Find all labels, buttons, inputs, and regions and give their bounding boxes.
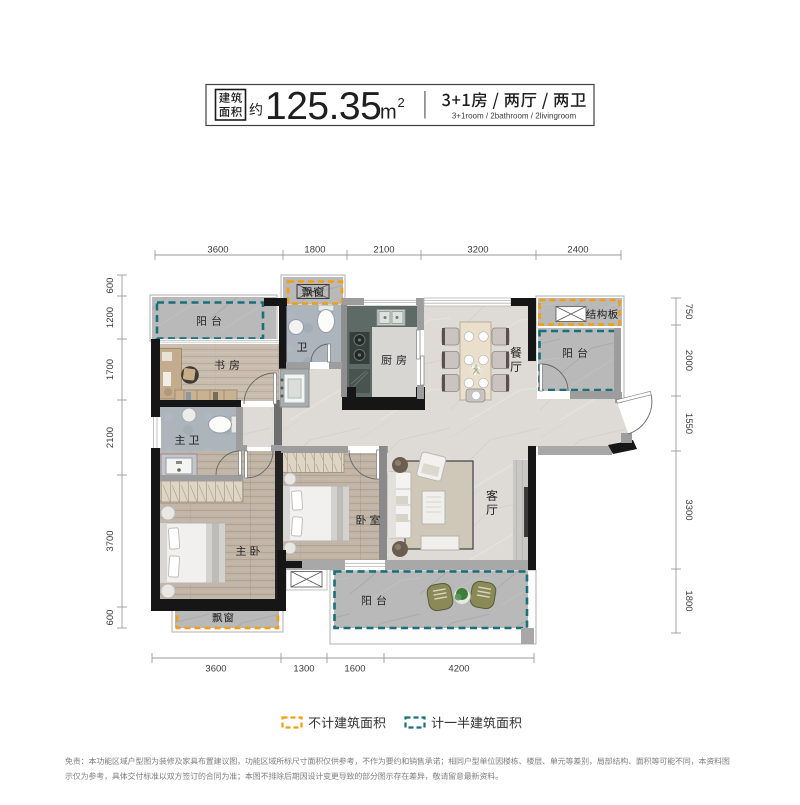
svg-text:4200: 4200: [448, 664, 469, 675]
svg-text:1700: 1700: [105, 359, 116, 380]
svg-text:1550: 1550: [683, 413, 694, 434]
svg-text:2100: 2100: [105, 427, 116, 448]
svg-text:3200: 3200: [467, 245, 488, 256]
svg-text:3600: 3600: [205, 664, 226, 675]
svg-text:125.35: 125.35: [265, 85, 381, 128]
svg-text:600: 600: [105, 610, 116, 626]
svg-text:1300: 1300: [293, 664, 314, 675]
svg-text:3600: 3600: [207, 245, 228, 256]
svg-text:1600: 1600: [344, 664, 365, 675]
svg-text:1800: 1800: [304, 245, 325, 256]
svg-text:2100: 2100: [373, 245, 394, 256]
svg-text:750: 750: [683, 304, 694, 320]
svg-text:3700: 3700: [105, 530, 116, 551]
svg-text:3300: 3300: [683, 499, 694, 520]
svg-text:3+1room / 2bathroom / 2livingr: 3+1room / 2bathroom / 2livingroom: [452, 112, 577, 121]
svg-text:2000: 2000: [683, 350, 694, 371]
svg-text:2: 2: [398, 95, 405, 110]
svg-text:1200: 1200: [105, 307, 116, 328]
svg-text:1800: 1800: [683, 590, 694, 611]
svg-text:2400: 2400: [567, 245, 588, 256]
svg-text:600: 600: [105, 278, 116, 294]
svg-text:m: m: [380, 102, 397, 124]
